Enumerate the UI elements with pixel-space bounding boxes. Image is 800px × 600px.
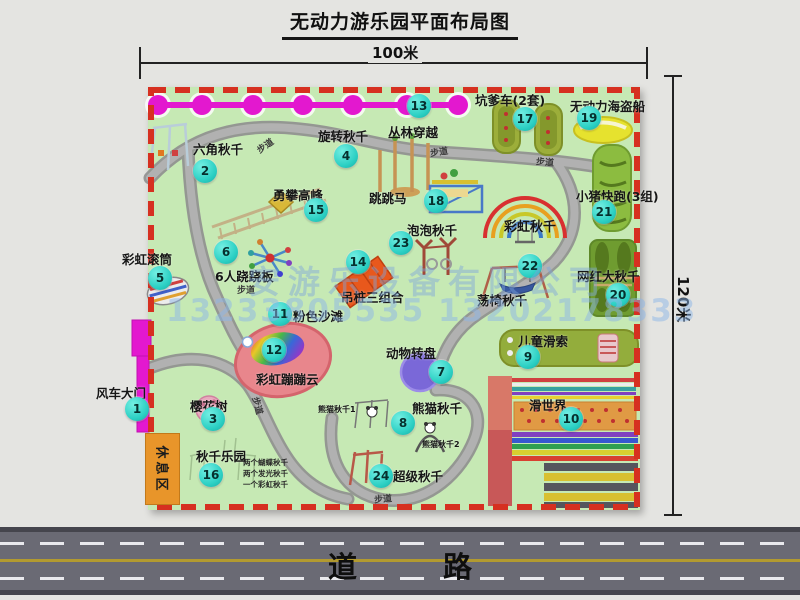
park-map-area xyxy=(148,87,640,510)
layout-plan-image: 无动力游乐园平面布局图 100米 120米 xyxy=(0,0,800,600)
page-title: 无动力游乐园平面布局图 xyxy=(0,7,800,40)
poi-1-marker: 1 xyxy=(125,397,149,421)
rest-area-label: 休息区 xyxy=(153,445,172,493)
page-title-text: 无动力游乐园平面布局图 xyxy=(282,7,518,40)
poi-1-label: 风车大门 xyxy=(96,383,146,402)
road-label: 道 路 xyxy=(0,544,800,586)
dimension-tick-right-top xyxy=(664,75,682,77)
dimension-tick-right-bottom xyxy=(664,514,682,516)
rest-area: 休息区 xyxy=(145,433,180,505)
road: 道 路 xyxy=(0,527,800,595)
dimension-tick-top-right xyxy=(646,47,648,79)
dimension-label-height: 120米 xyxy=(673,272,694,326)
dimension-tick-top-left xyxy=(139,47,141,79)
dimension-label-width: 100米 xyxy=(368,42,422,63)
